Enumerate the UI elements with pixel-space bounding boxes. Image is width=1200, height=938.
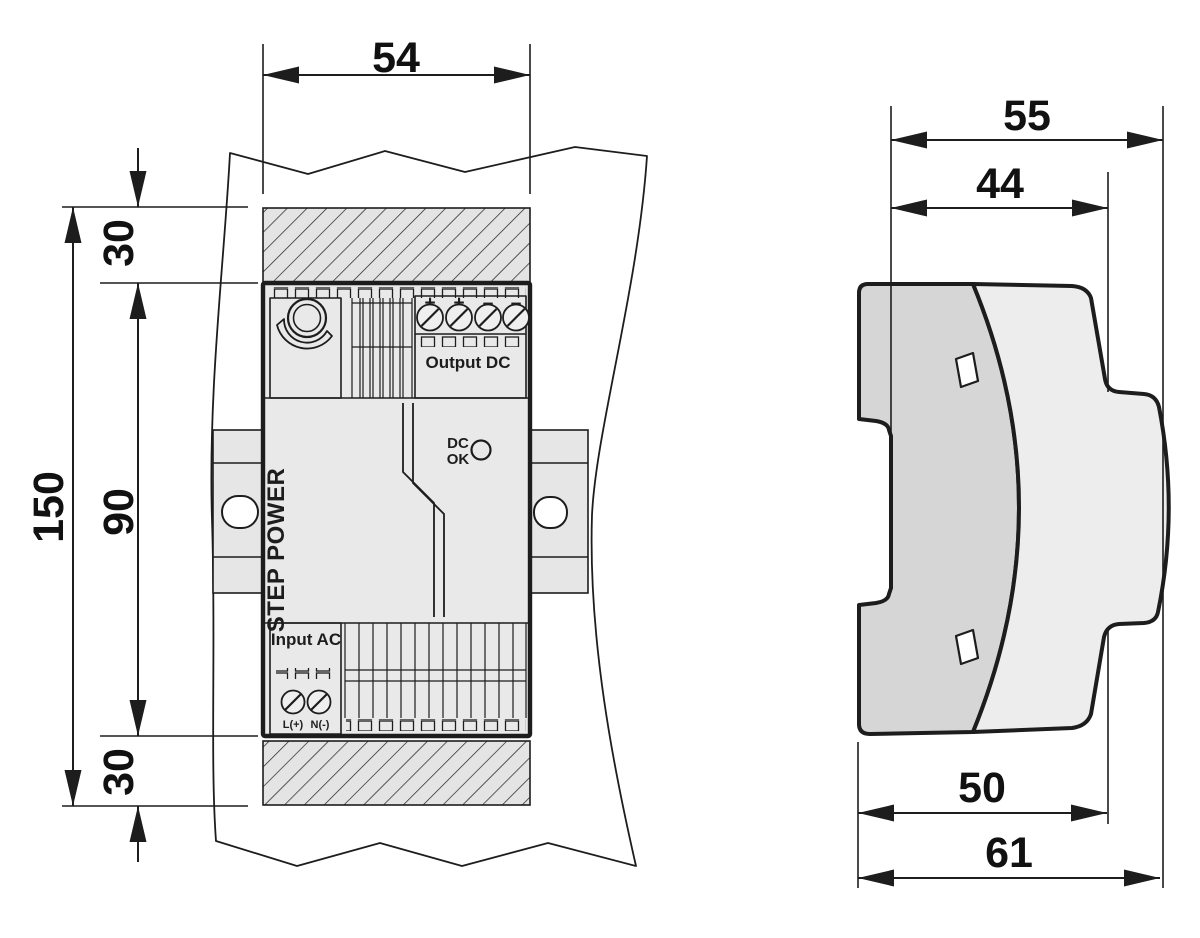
din-rail-band-left [213,430,263,593]
dimension-front-depth-50: 50 [858,764,1107,822]
brand-label: STEP POWER [263,468,290,633]
dc-ok-label-line1: DC [447,435,469,452]
dimension-total-depth-61: 61 [858,829,1160,887]
dim-top-clearance-value: 30 [95,219,143,267]
dimension-overall-width-55: 55 [891,92,1163,149]
dim-body-height-value: 90 [95,488,143,536]
input-terminal-n-label: N(-) [311,719,330,731]
clearance-zone-bottom-hatch [263,741,530,805]
dim-total-depth-value: 61 [985,829,1033,877]
dimension-housing-width-44: 44 [891,160,1108,217]
dim-total-height-value: 150 [25,471,73,543]
dimensional-drawing: + + – – Output DC STEP POWER DC OK [0,0,1200,938]
input-terminal-l-label: L(+) [283,719,304,731]
dimension-body-height-90: 90 [95,283,147,736]
terminal-comb-input [276,668,332,679]
output-section-label: Output DC [426,353,511,372]
terminal-comb-output [418,336,522,347]
side-vent-slot-bottom [956,630,978,664]
terminal-comb-bottom [346,719,526,731]
input-section-label: Input AC [271,630,341,649]
front-view: + + – – Output DC STEP POWER DC OK [25,34,647,866]
mounting-slot-right [534,497,567,528]
clearance-zone-top-hatch [263,208,530,283]
dim-overall-width-value: 55 [1003,92,1051,140]
mounting-slot-left [222,496,258,528]
dim-width-value: 54 [372,34,420,82]
din-rail-band-right [530,430,588,593]
dim-bottom-clearance-value: 30 [95,748,143,796]
dimension-bottom-clearance-30: 30 [95,748,147,862]
dimension-total-height-150: 150 [25,207,82,806]
dim-front-depth-value: 50 [958,764,1006,812]
side-vent-slot-top [956,353,978,387]
dc-ok-label-line2: OK [447,451,470,468]
dim-housing-width-value: 44 [976,160,1024,208]
side-view: 55 44 50 61 [858,92,1169,888]
